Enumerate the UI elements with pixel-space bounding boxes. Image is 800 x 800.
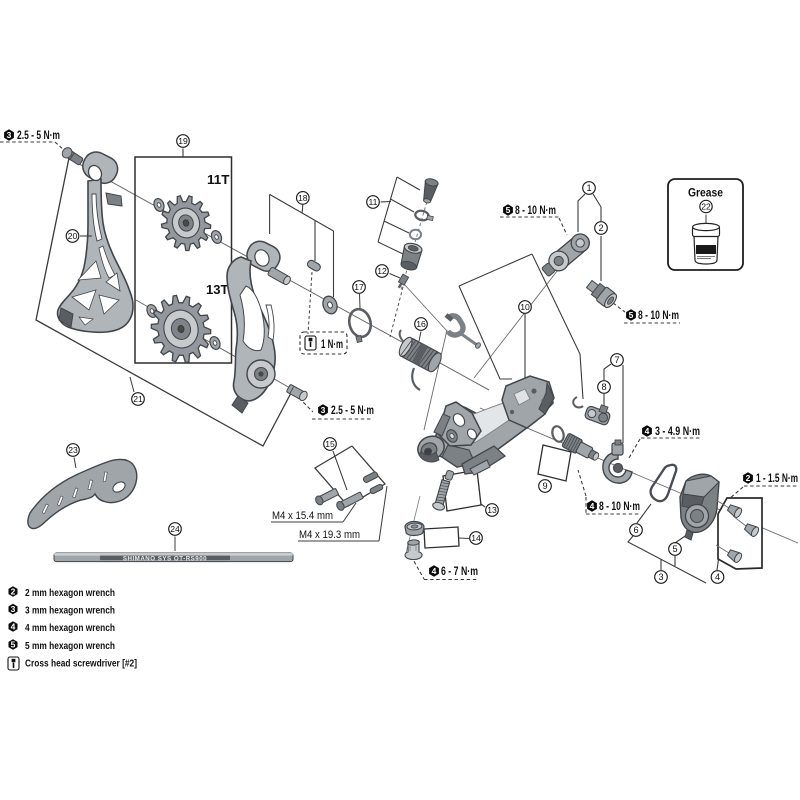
svg-text:23: 23 [68, 445, 78, 455]
svg-text:3 - 4.9 N·m: 3 - 4.9 N·m [655, 426, 700, 438]
svg-text:9: 9 [542, 481, 547, 491]
svg-text:1 N·m: 1 N·m [321, 339, 343, 351]
svg-text:24: 24 [170, 524, 180, 534]
svg-text:2.5 - 5 N·m: 2.5 - 5 N·m [17, 130, 60, 142]
svg-text:2: 2 [746, 473, 751, 483]
svg-text:8 - 10 N·m: 8 - 10 N·m [515, 205, 556, 217]
svg-text:10: 10 [520, 302, 530, 312]
svg-text:4: 4 [590, 501, 595, 511]
svg-text:8: 8 [601, 382, 606, 392]
svg-text:Grease: Grease [688, 186, 723, 200]
svg-text:2: 2 [598, 223, 603, 233]
svg-text:SHIMANO SYS OT-RS900: SHIMANO SYS OT-RS900 [123, 556, 207, 563]
svg-text:13: 13 [487, 505, 497, 515]
svg-text:12: 12 [377, 266, 387, 276]
svg-text:4: 4 [715, 572, 720, 582]
svg-text:3: 3 [7, 130, 12, 140]
svg-text:7: 7 [614, 355, 619, 365]
svg-text:5 mm hexagon wrench: 5 mm hexagon wrench [25, 640, 115, 652]
svg-text:1: 1 [586, 183, 591, 193]
svg-text:2.5 - 5 N·m: 2.5 - 5 N·m [331, 405, 374, 417]
svg-text:16: 16 [416, 319, 426, 329]
svg-text:19: 19 [178, 136, 188, 146]
svg-text:4: 4 [11, 622, 16, 632]
svg-text:4: 4 [645, 426, 650, 436]
svg-text:4: 4 [432, 566, 437, 576]
svg-text:3: 3 [658, 572, 663, 582]
svg-text:4 mm hexagon wrench: 4 mm hexagon wrench [25, 622, 115, 634]
svg-text:5: 5 [11, 640, 16, 650]
svg-text:2: 2 [11, 587, 16, 597]
svg-text:5: 5 [672, 544, 677, 554]
svg-text:1 - 1.5 N·m: 1 - 1.5 N·m [756, 473, 798, 485]
svg-text:8 - 10 N·m: 8 - 10 N·m [638, 310, 679, 322]
svg-text:5: 5 [506, 205, 511, 215]
svg-text:5: 5 [629, 310, 634, 320]
svg-text:15: 15 [325, 439, 335, 449]
svg-text:14: 14 [471, 533, 481, 543]
svg-text:18: 18 [298, 193, 308, 203]
svg-text:2 mm hexagon wrench: 2 mm hexagon wrench [25, 587, 115, 599]
svg-text:M4 x 19.3 mm: M4 x 19.3 mm [299, 529, 360, 541]
svg-text:Cross head screwdriver [#2]: Cross head screwdriver [#2] [25, 658, 137, 670]
svg-text:6 - 7 N·m: 6 - 7 N·m [441, 566, 478, 578]
svg-text:3: 3 [321, 405, 326, 415]
svg-text:22: 22 [701, 202, 711, 212]
svg-text:3: 3 [11, 604, 16, 614]
svg-text:11T: 11T [207, 173, 230, 187]
svg-text:17: 17 [354, 282, 364, 292]
svg-text:11: 11 [369, 197, 378, 207]
svg-text:20: 20 [68, 231, 78, 241]
svg-text:6: 6 [633, 525, 638, 535]
svg-text:13T: 13T [206, 283, 229, 297]
svg-text:M4 x 15.4 mm: M4 x 15.4 mm [272, 510, 333, 522]
svg-text:3 mm hexagon wrench: 3 mm hexagon wrench [25, 605, 115, 617]
svg-text:21: 21 [133, 394, 143, 404]
svg-text:8 - 10 N·m: 8 - 10 N·m [599, 501, 640, 513]
